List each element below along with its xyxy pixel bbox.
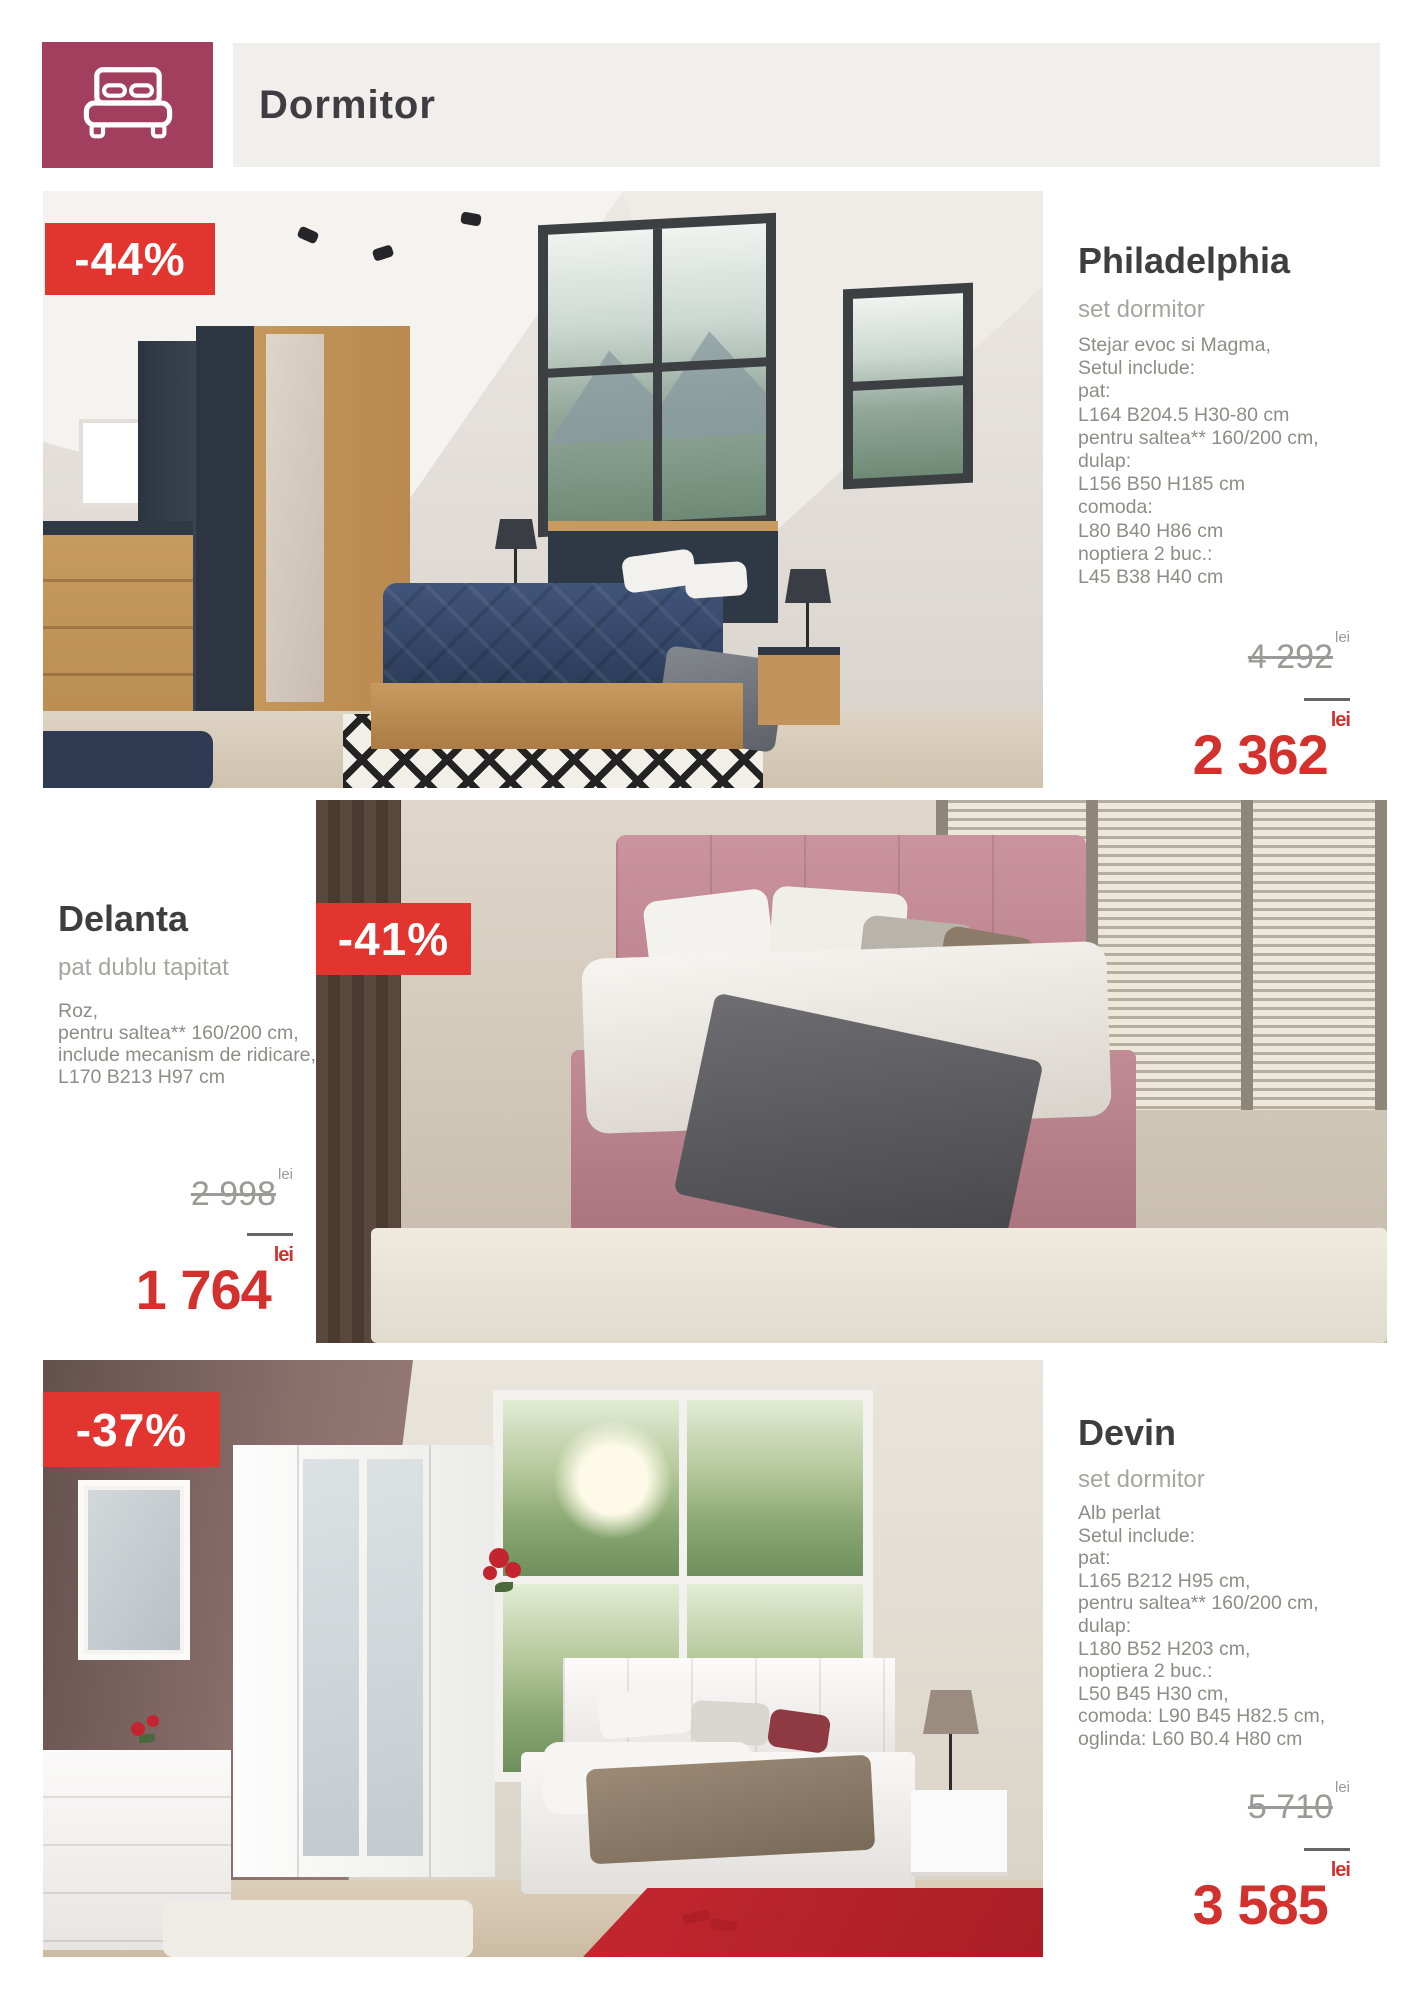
photo3-red-rose <box>505 1562 521 1578</box>
photo1-window-large <box>538 213 776 537</box>
product-photo-philadelphia: -44% <box>43 191 1043 788</box>
new-price-philadelphia: 2 362lei <box>1193 722 1350 787</box>
product-category-delanta: pat dublu tapitat <box>58 954 229 982</box>
photo2-shag-rug <box>371 1228 1387 1343</box>
photo1-pillow <box>684 561 748 599</box>
photo1-lamp-right <box>785 569 831 603</box>
photo3-wardrobe <box>233 1445 495 1877</box>
description-line: noptiera 2 buc.: <box>1078 543 1319 566</box>
description-line: pentru saltea** 160/200 cm, <box>1078 427 1319 450</box>
new-price-delanta: 1 764lei <box>136 1257 293 1322</box>
photo1-window-small <box>843 283 973 490</box>
photo3-rose-leaf <box>495 1582 513 1592</box>
new-price-devin: 3 585lei <box>1193 1872 1350 1937</box>
photo3-red-rug <box>583 1888 1043 1957</box>
discount-badge-philadelphia: -44% <box>45 223 215 295</box>
price-divider <box>247 1233 293 1236</box>
product-name-philadelphia: Philadelphia <box>1078 240 1290 282</box>
description-line: Stejar evoc si Magma, <box>1078 334 1319 357</box>
description-line: pentru saltea** 160/200 cm, <box>1078 1592 1325 1615</box>
photo1-window-mullion <box>853 376 963 391</box>
photo3-wardrobe-mirror <box>303 1459 359 1856</box>
description-line: pentru saltea** 160/200 cm, <box>58 1022 316 1044</box>
currency-label: lei <box>1331 1859 1350 1881</box>
photo1-wardrobe <box>196 326 410 718</box>
catalog-page: Dormitor <box>0 0 1425 2000</box>
photo1-blanket-foreground <box>43 731 213 788</box>
photo3-pillow-maroon <box>767 1708 832 1754</box>
photo2-window-mullion <box>1375 800 1387 1110</box>
description-line: L165 B212 H95 cm, <box>1078 1570 1325 1593</box>
product-description-philadelphia: Stejar evoc si Magma,Setul include:pat:L… <box>1078 334 1319 589</box>
photo3-pillow-white <box>597 1686 693 1740</box>
description-line: L170 B213 H97 cm <box>58 1066 316 1088</box>
photo3-nightstand <box>911 1790 1007 1876</box>
product-category-devin: set dormitor <box>1078 1466 1205 1494</box>
photo3-wardrobe-mirror <box>367 1459 423 1856</box>
description-line: L156 B50 H185 cm <box>1078 473 1319 496</box>
photo3-window-pane <box>687 1400 863 1576</box>
description-line: comoda: <box>1078 496 1319 519</box>
description-line: dulap: <box>1078 1615 1325 1638</box>
price-divider <box>1304 1848 1350 1851</box>
description-line: L180 B52 H203 cm, <box>1078 1638 1325 1661</box>
photo3-white-rug <box>163 1900 473 1957</box>
photo3-sunlight <box>553 1420 673 1540</box>
currency-label: lei <box>274 1244 293 1266</box>
photo3-lamp <box>923 1690 979 1734</box>
product-name-delanta: Delanta <box>58 898 188 940</box>
photo3-pillow-gray <box>690 1700 770 1746</box>
old-price-delanta: 2 998lei <box>191 1175 293 1214</box>
photo3-wardrobe-seam <box>429 1445 431 1877</box>
section-title-bar: Dormitor <box>233 43 1380 167</box>
photo1-window-mullion <box>653 229 662 521</box>
description-line: L164 B204.5 H30-80 cm <box>1078 404 1319 427</box>
photo3-mirror-glass <box>88 1490 180 1650</box>
product-description-delanta: Roz,pentru saltea** 160/200 cm,include m… <box>58 1000 316 1088</box>
category-icon-box <box>42 42 213 168</box>
photo3-brown-blanket <box>586 1755 876 1865</box>
currency-label: lei <box>1335 629 1350 646</box>
product-photo-delanta: -41% <box>316 800 1387 1343</box>
description-line: L45 B38 H40 cm <box>1078 566 1319 589</box>
photo1-wardrobe-mirror <box>266 334 324 702</box>
old-price-devin: 5 710lei <box>1248 1788 1350 1827</box>
product-description-devin: Alb perlatSetul include:pat:L165 B212 H9… <box>1078 1502 1325 1751</box>
product-photo-devin: -37% <box>43 1360 1043 1957</box>
photo1-nightstand <box>758 647 840 725</box>
photo1-wall-art <box>79 419 145 507</box>
photo1-window-view <box>853 293 963 479</box>
photo1-window-view <box>548 223 766 526</box>
photo1-wardrobe-dark-panel <box>196 326 254 718</box>
description-line: dulap: <box>1078 450 1319 473</box>
currency-label: lei <box>1331 709 1350 731</box>
photo1-bed-frame <box>371 683 743 749</box>
currency-label: lei <box>1335 1779 1350 1796</box>
currency-label: lei <box>278 1166 293 1183</box>
photo1-lamp-right-stem <box>806 603 809 647</box>
product-name-devin: Devin <box>1078 1412 1176 1454</box>
price-divider <box>1304 698 1350 701</box>
old-price-philadelphia: 4 292lei <box>1248 638 1350 677</box>
discount-badge-devin: -37% <box>43 1392 220 1467</box>
photo3-flower-leaf <box>139 1734 155 1743</box>
photo3-wall-mirror <box>78 1480 190 1660</box>
photo3-wardrobe-seam <box>297 1445 299 1877</box>
description-line: pat: <box>1078 1547 1325 1570</box>
description-line: Setul include: <box>1078 357 1319 380</box>
photo1-lamp-left <box>495 519 537 549</box>
photo3-flower <box>147 1715 159 1727</box>
photo3-lamp-stem <box>949 1734 952 1790</box>
description-line: L80 B40 H86 cm <box>1078 520 1319 543</box>
description-line: noptiera 2 buc.: <box>1078 1660 1325 1683</box>
description-line: comoda: L90 B45 H82.5 cm, <box>1078 1705 1325 1728</box>
photo3-red-rose <box>483 1566 497 1580</box>
description-line: Setul include: <box>1078 1525 1325 1548</box>
photo2-window-mullion <box>1241 800 1253 1110</box>
description-line: include mecanism de ridicare, <box>58 1044 316 1066</box>
description-line: pat: <box>1078 380 1319 403</box>
page-title: Dormitor <box>259 83 436 128</box>
discount-badge-delanta: -41% <box>316 903 471 975</box>
bed-icon <box>76 65 180 146</box>
description-line: L50 B45 H30 cm, <box>1078 1683 1325 1706</box>
description-line: oglinda: L60 B0.4 H80 cm <box>1078 1728 1325 1751</box>
description-line: Alb perlat <box>1078 1502 1325 1525</box>
product-category-philadelphia: set dormitor <box>1078 296 1205 324</box>
description-line: Roz, <box>58 1000 316 1022</box>
